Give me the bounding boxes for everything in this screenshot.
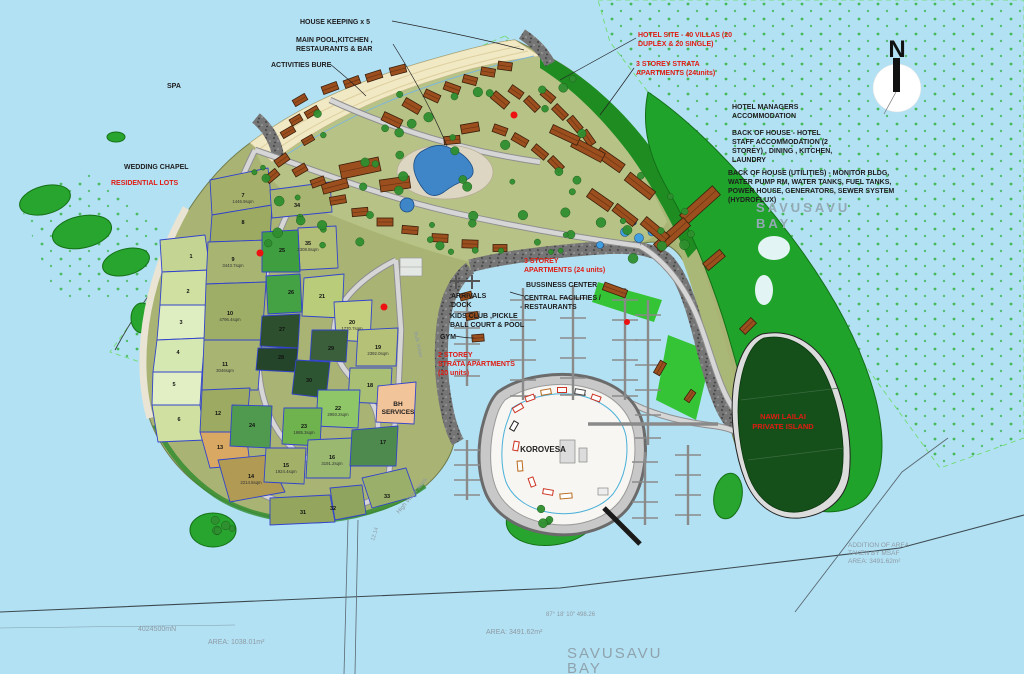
- label-arrivals-2: DOCK: [451, 302, 472, 309]
- tree: [317, 220, 326, 229]
- lot-area-22: 2993.2sqm: [327, 412, 349, 417]
- tree: [295, 195, 300, 200]
- lot-number-1: 1: [189, 254, 192, 260]
- label-arrivals-1: ARRIVALS: [451, 293, 487, 300]
- tree: [510, 179, 515, 184]
- tree: [687, 231, 694, 238]
- label-msaf-1: ADDITION OF AREA: [848, 542, 910, 549]
- lot-number-13: 13: [217, 445, 223, 451]
- lot-number-2: 2: [186, 289, 189, 295]
- tree: [538, 86, 546, 94]
- label-kids-club-1: KIDS CLUB ,PICKLE: [450, 313, 518, 320]
- label-housekeeping: HOUSE KEEPING x 5: [300, 19, 370, 26]
- label-kids-club-2: BALL COURT & POOL: [450, 322, 525, 329]
- lot-number-3: 3: [179, 320, 182, 326]
- tree: [537, 505, 545, 513]
- lot-number-12: 12: [215, 411, 221, 417]
- tree: [320, 242, 326, 248]
- tree: [500, 140, 510, 150]
- tree: [548, 249, 553, 254]
- label-boh-util-2: WATER PUMP RM, WATER TANKS, FUEL TANKS,: [728, 179, 891, 186]
- label-bussiness-center: BUSSINESS CENTER: [526, 282, 597, 289]
- lot-area-15: 1924.4sqm: [275, 469, 297, 474]
- tree: [518, 210, 528, 220]
- tree: [448, 249, 454, 255]
- lot-area-10: 4796.4sqm: [219, 317, 241, 322]
- tree: [427, 237, 433, 243]
- tree: [382, 125, 389, 132]
- lot-number-30: 30: [306, 378, 312, 384]
- tree: [555, 168, 563, 176]
- tree: [486, 89, 493, 96]
- label-hotel-mgr-2: ACCOMMODATION: [732, 113, 796, 120]
- lot-area-19: 2392.0sqm: [367, 351, 389, 356]
- korovesa-building: [517, 461, 523, 471]
- lot-area-16: 3191.2sqm: [321, 461, 343, 466]
- tree: [451, 147, 459, 155]
- lot-number-29: 29: [328, 346, 334, 352]
- tree: [473, 87, 483, 97]
- label-main-pool-2: RESTAURANTS & BAR: [296, 46, 372, 53]
- tree: [498, 248, 504, 254]
- tree: [359, 183, 367, 191]
- lot-number-25: 25: [279, 248, 285, 254]
- tree: [450, 134, 456, 140]
- label-bay-wm1a: SAVUSAVU: [756, 200, 850, 215]
- label-bearing: 87° 18' 10" 498.26: [546, 612, 596, 618]
- tree: [463, 182, 472, 191]
- korovesa-building: [558, 388, 567, 393]
- site-plan-map: N 12345671446.9sqm893443.7sqm104796.4sqm…: [0, 0, 1024, 674]
- label-area-1038: AREA: 1038.01m²: [208, 639, 265, 646]
- tree: [681, 208, 688, 215]
- tree: [260, 165, 265, 170]
- label-hotel-mgr-1: HOTEL MANAGERS: [732, 104, 799, 111]
- tree: [657, 241, 667, 251]
- lot-number-26: 26: [288, 290, 294, 296]
- lot-area-20: 1770.7sqm: [341, 326, 363, 331]
- label-bh-2: SERVICES: [382, 409, 415, 416]
- label-central-fac-2: - RESTAURANTS: [520, 304, 577, 311]
- tree: [221, 521, 230, 530]
- north-letter: N: [888, 36, 905, 63]
- label-korovesa: KOROVESA: [520, 445, 566, 454]
- tree: [273, 228, 283, 238]
- tree: [468, 219, 476, 227]
- tree: [468, 211, 478, 221]
- tree: [569, 75, 576, 82]
- tree: [561, 208, 570, 217]
- korovesa-building: [560, 493, 572, 499]
- lot-area-7: 1446.9sqm: [232, 199, 254, 204]
- tree: [320, 132, 326, 138]
- label-grid-n: 4024500mN: [138, 626, 176, 633]
- tree: [396, 91, 402, 97]
- lot-number-33: 33: [384, 494, 390, 500]
- label-boh-2: STAFF ACCOMMODATION (2: [732, 139, 828, 146]
- tree: [407, 119, 416, 128]
- tree: [451, 93, 458, 100]
- korovesa-island: [479, 374, 645, 534]
- lot-number-27: 27: [279, 327, 285, 333]
- label-boh-1: BACK OF HOUSE - HOTEL: [732, 130, 821, 137]
- building: [402, 225, 419, 234]
- lot-number-8: 8: [241, 220, 244, 226]
- label-boh-util-1: BACK OF HOUSE (UTILITIES) - MONITOR BLDG…: [728, 170, 889, 177]
- lot-area-23: 1985.3sqm: [293, 430, 315, 435]
- lot-number-6: 6: [177, 417, 180, 423]
- tree: [436, 242, 445, 251]
- tree: [252, 170, 257, 175]
- tree: [620, 218, 626, 224]
- label-nawi-1: NAWI LAILAI: [760, 412, 806, 421]
- tree: [296, 216, 305, 225]
- tree: [534, 239, 540, 245]
- lot-number-21: 21: [319, 294, 325, 300]
- tree: [361, 158, 370, 167]
- building: [498, 61, 513, 71]
- tree: [538, 519, 547, 528]
- lot-area-9: 3443.7sqm: [222, 263, 244, 268]
- tree: [265, 240, 273, 248]
- tree: [274, 196, 284, 206]
- tree: [424, 112, 434, 122]
- lot-number-5: 5: [172, 382, 175, 388]
- label-strata2-3: (20 units): [438, 370, 469, 377]
- label-bh-1: BH: [393, 401, 403, 408]
- tree: [372, 161, 379, 168]
- label-strata2-1: 2 STOREY: [438, 352, 473, 359]
- label-apts3-2: APARTMENTS (24 units): [524, 267, 605, 274]
- tree: [398, 171, 408, 181]
- label-bay-wm2b: BAY: [567, 660, 602, 674]
- lot-number-31: 31: [300, 510, 306, 516]
- tree: [542, 105, 549, 112]
- label-gym: GYM: [440, 334, 456, 341]
- tree: [211, 516, 219, 524]
- lot-number-34: 34: [294, 203, 301, 209]
- label-hotel-site-2: DUPLEX & 20 SINGLE): [638, 41, 713, 48]
- tree: [366, 211, 373, 218]
- tree: [394, 186, 403, 195]
- label-main-pool-1: MAIN POOL,KITCHEN ,: [296, 37, 373, 44]
- label-bay-wm1b: BAY: [756, 216, 791, 231]
- label-wedding-chapel: WEDDING CHAPEL: [124, 164, 189, 171]
- tree: [623, 225, 632, 234]
- lot-number-18: 18: [367, 383, 373, 389]
- label-boh-util-3: POWER HOUSE, GENERATORS, SEWER SYSTEM: [728, 188, 894, 195]
- label-area-3491: AREA: 3491.62m²: [486, 629, 543, 636]
- tree: [558, 248, 563, 253]
- label-boh-4: LAUNDRY: [732, 157, 766, 164]
- tree: [563, 232, 568, 237]
- building: [432, 234, 448, 243]
- tree: [578, 129, 587, 138]
- label-hotel-site-1: HOTEL SITE - 40 VILLAS (20: [638, 32, 732, 39]
- tree: [573, 176, 581, 184]
- resort-master-plan-svg: N 12345671446.9sqm893443.7sqm104796.4sqm…: [0, 0, 1024, 674]
- lot-area-14: 2214.5sqm: [240, 480, 262, 485]
- tree: [559, 83, 568, 92]
- lot-number-32: 32: [330, 506, 336, 512]
- tree: [569, 189, 575, 195]
- lot-area-35: 2308.8sqm: [297, 247, 319, 252]
- lot-number-17: 17: [380, 440, 386, 446]
- tree: [262, 174, 270, 182]
- lot-area-11: 3046sqm: [216, 368, 234, 373]
- tree: [356, 238, 364, 246]
- tree: [667, 194, 673, 200]
- tree: [658, 228, 665, 235]
- tree: [628, 253, 638, 263]
- tree: [214, 527, 222, 535]
- label-apts3-1: 3 STOREY: [524, 258, 559, 265]
- label-strata3-2: APARTMENTS (24units): [636, 70, 715, 77]
- label-nawi-2: PRIVATE ISLAND: [752, 422, 814, 431]
- label-strata3-1: 3 STOREY STRATA: [636, 61, 700, 68]
- tree: [637, 172, 644, 179]
- label-central-fac-1: CENTRAL FACILITIES /: [524, 295, 601, 302]
- tree: [472, 247, 478, 253]
- label-strata2-2: STRATA APARTMENTS: [438, 361, 515, 368]
- label-msaf-3: AREA: 3491.62m²: [848, 558, 901, 565]
- lot-number-28: 28: [278, 355, 284, 361]
- korovesa-building: [543, 489, 554, 496]
- label-boh-3: STOREY) , DINING , KITCHEN,: [732, 148, 832, 155]
- tree: [396, 151, 404, 159]
- korovesa-building: [541, 389, 552, 396]
- lot-number-24: 24: [249, 423, 256, 429]
- label-msaf-2: TAKEN BY MSAF: [848, 550, 899, 557]
- korovesa-building: [575, 389, 586, 396]
- tree: [314, 110, 322, 118]
- korovesa-building: [513, 441, 519, 451]
- tree: [429, 222, 434, 227]
- label-spa: SPA: [167, 83, 181, 90]
- building: [352, 207, 369, 216]
- tree: [680, 240, 690, 250]
- tree: [395, 128, 404, 137]
- label-residential-lots: RESIDENTIAL LOTS: [111, 180, 178, 187]
- building: [377, 218, 393, 226]
- label-activities-bure: ACTIVITIES BURE: [271, 62, 332, 69]
- tree: [596, 218, 606, 228]
